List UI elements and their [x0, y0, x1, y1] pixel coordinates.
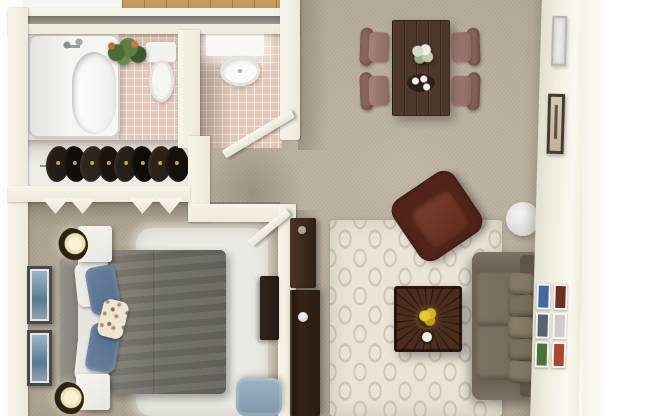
table-lamp-bottom [50, 382, 84, 416]
clothes-item [163, 145, 191, 184]
sofa-back-pillow [507, 338, 534, 360]
gallery-frame [552, 342, 567, 368]
gallery-frame [553, 284, 568, 310]
coffee-cup [422, 332, 432, 342]
gallery-frame [552, 313, 567, 339]
top-wall [8, 8, 300, 34]
wall-art-frame [27, 266, 52, 324]
dining-chair [359, 27, 390, 66]
gallery-frames [535, 283, 568, 368]
chair-seat [450, 32, 471, 63]
gallery-frame [536, 283, 551, 309]
wall-art-print [30, 333, 49, 383]
table-lamp-top [54, 228, 88, 262]
sofa-back-pillow [507, 294, 534, 317]
wall-frame-art [547, 94, 566, 154]
storage-bench [236, 378, 282, 416]
left-wall [8, 8, 28, 416]
potted-plant [102, 34, 150, 68]
toilet-tank [146, 42, 176, 62]
sofa-back-pillow [507, 272, 534, 295]
dresser [260, 276, 279, 340]
vanity-counter [206, 32, 264, 56]
hanging-clothes [46, 146, 188, 184]
vanity-sink [220, 56, 260, 86]
bed-comforter [108, 250, 226, 394]
flower-vase [408, 40, 436, 68]
entry-door [290, 290, 320, 416]
chair-seat [368, 32, 389, 63]
outside-area [582, 0, 652, 416]
console-table [290, 218, 316, 288]
wall-frame-mirror [551, 16, 567, 66]
chair-seat [368, 76, 389, 107]
bathroom-wall-shadow [298, 0, 328, 150]
floor-plan-image [0, 0, 652, 416]
bathroom-divider-wall [178, 30, 200, 148]
bathtub-faucet [60, 36, 88, 54]
gallery-frame [535, 341, 550, 367]
armchair-cushion [406, 187, 472, 252]
dining-chair [449, 71, 480, 110]
coffee-table [394, 286, 462, 352]
dining-chair [449, 27, 480, 66]
wall-art-print [30, 269, 49, 321]
gallery-frame [535, 312, 550, 338]
dining-chair [359, 71, 390, 110]
dining-table [392, 20, 450, 116]
door-knob [298, 312, 308, 322]
chair-seat [450, 76, 471, 107]
sofa-back-pillow [507, 316, 534, 338]
wall-groove [26, 16, 284, 24]
toilet-bowl [149, 60, 174, 102]
flower-centerpiece [417, 306, 439, 328]
serving-tray [407, 73, 435, 93]
wall-art-frame [27, 330, 52, 386]
